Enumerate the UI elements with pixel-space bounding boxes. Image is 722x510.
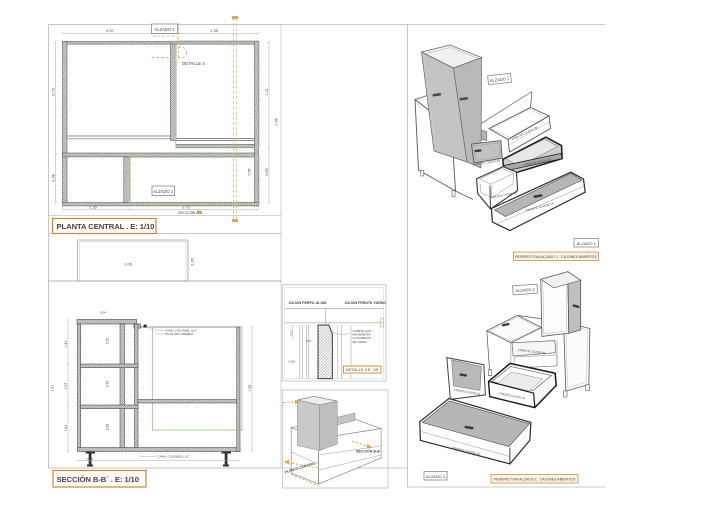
svg-text:DETALLE 4 E: 1/5: DETALLE 4 E: 1/5 — [346, 367, 379, 372]
svg-text:CAJON PERFIL ALUM.: CAJON PERFIL ALUM. — [289, 301, 328, 305]
svg-text:1.35: 1.35 — [89, 205, 96, 209]
svg-text:0.38: 0.38 — [52, 174, 56, 181]
svg-text:1.31: 1.31 — [51, 385, 55, 392]
svg-text:0.02: 0.02 — [306, 339, 312, 343]
svg-text:0.93: 0.93 — [248, 385, 252, 392]
svg-text:0.76: 0.76 — [52, 88, 56, 95]
svg-text:0.04: 0.04 — [100, 311, 106, 315]
svg-text:0.62: 0.62 — [87, 457, 93, 461]
svg-text:0.97: 0.97 — [106, 29, 113, 33]
svg-text:ALZADO 2: ALZADO 2 — [426, 474, 446, 479]
svg-text:PLANTA CENTRAL . E: 1/10: PLANTA CENTRAL . E: 1/10 — [57, 222, 155, 231]
svg-text:0.36: 0.36 — [106, 424, 110, 430]
svg-text:SECCIÓN B-B´: SECCIÓN B-B´ — [356, 449, 382, 454]
svg-text:CAJON FRENTE VIDRIO: CAJON FRENTE VIDRIO — [345, 301, 387, 305]
svg-text:0.41: 0.41 — [64, 341, 68, 348]
svg-text:SECCIÓN B-B´ . E: 1/10: SECCIÓN B-B´ . E: 1/10 — [57, 475, 139, 484]
svg-text:PERSPECTIVA ALZADO 1 . CAJONE: PERSPECTIVA ALZADO 1 . CAJONES ABIERTOS — [515, 255, 597, 259]
svg-text:2.26: 2.26 — [191, 258, 195, 265]
svg-text:0.41: 0.41 — [64, 425, 68, 432]
svg-text:ALZADO 1: ALZADO 1 — [577, 241, 597, 246]
svg-text:SECCION A-A: SECCION A-A — [178, 211, 203, 215]
svg-text:0.35: 0.35 — [106, 338, 110, 344]
svg-text:1.41: 1.41 — [265, 88, 269, 95]
svg-text:DETALLE 4: DETALLE 4 — [182, 61, 205, 66]
svg-text:0.55: 0.55 — [248, 169, 252, 176]
svg-text:P.N 50 LED VIDRIERA: P.N 50 LED VIDRIERA — [165, 332, 194, 336]
svg-text:DE VIDRIO: DE VIDRIO — [353, 340, 368, 344]
svg-text:0.018: 0.018 — [289, 360, 296, 364]
svg-text:1.66: 1.66 — [275, 118, 279, 125]
svg-text:1.35: 1.35 — [210, 29, 217, 33]
svg-text:ALZADO 2: ALZADO 2 — [154, 27, 175, 32]
svg-text:1.06: 1.06 — [124, 263, 131, 267]
svg-text:CANAL CON RISEL LUZ: CANAL CON RISEL LUZ — [158, 455, 189, 459]
svg-text:0.37: 0.37 — [64, 383, 68, 390]
svg-text:ALZADO 1: ALZADO 1 — [153, 189, 174, 194]
svg-text:0.05: 0.05 — [290, 330, 294, 336]
svg-text:PERSPECTIVA ALZADO 2 . CAJONE: PERSPECTIVA ALZADO 2 . CAJONES ABIERTOS — [494, 478, 576, 482]
svg-text:0.33: 0.33 — [106, 381, 110, 387]
svg-text:0.55: 0.55 — [265, 168, 269, 175]
svg-text:0.73: 0.73 — [182, 205, 189, 209]
